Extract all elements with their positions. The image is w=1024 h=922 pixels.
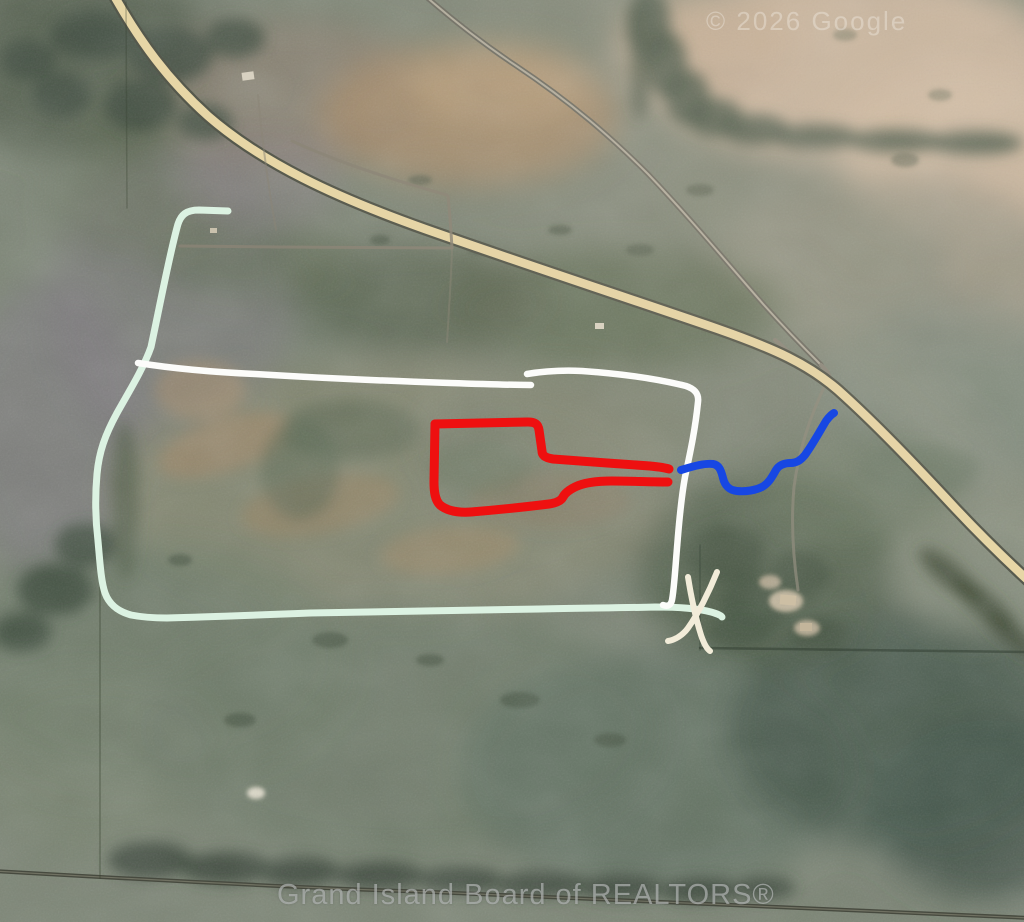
satellite-map: [0, 0, 1024, 922]
haze-overlay: [0, 0, 1024, 922]
realtors-watermark: Grand Island Board of REALTORS®: [277, 879, 775, 912]
google-watermark: © 2026 Google: [706, 6, 907, 37]
map-screenshot: © 2026 Google Grand Island Board of REAL…: [0, 0, 1024, 922]
